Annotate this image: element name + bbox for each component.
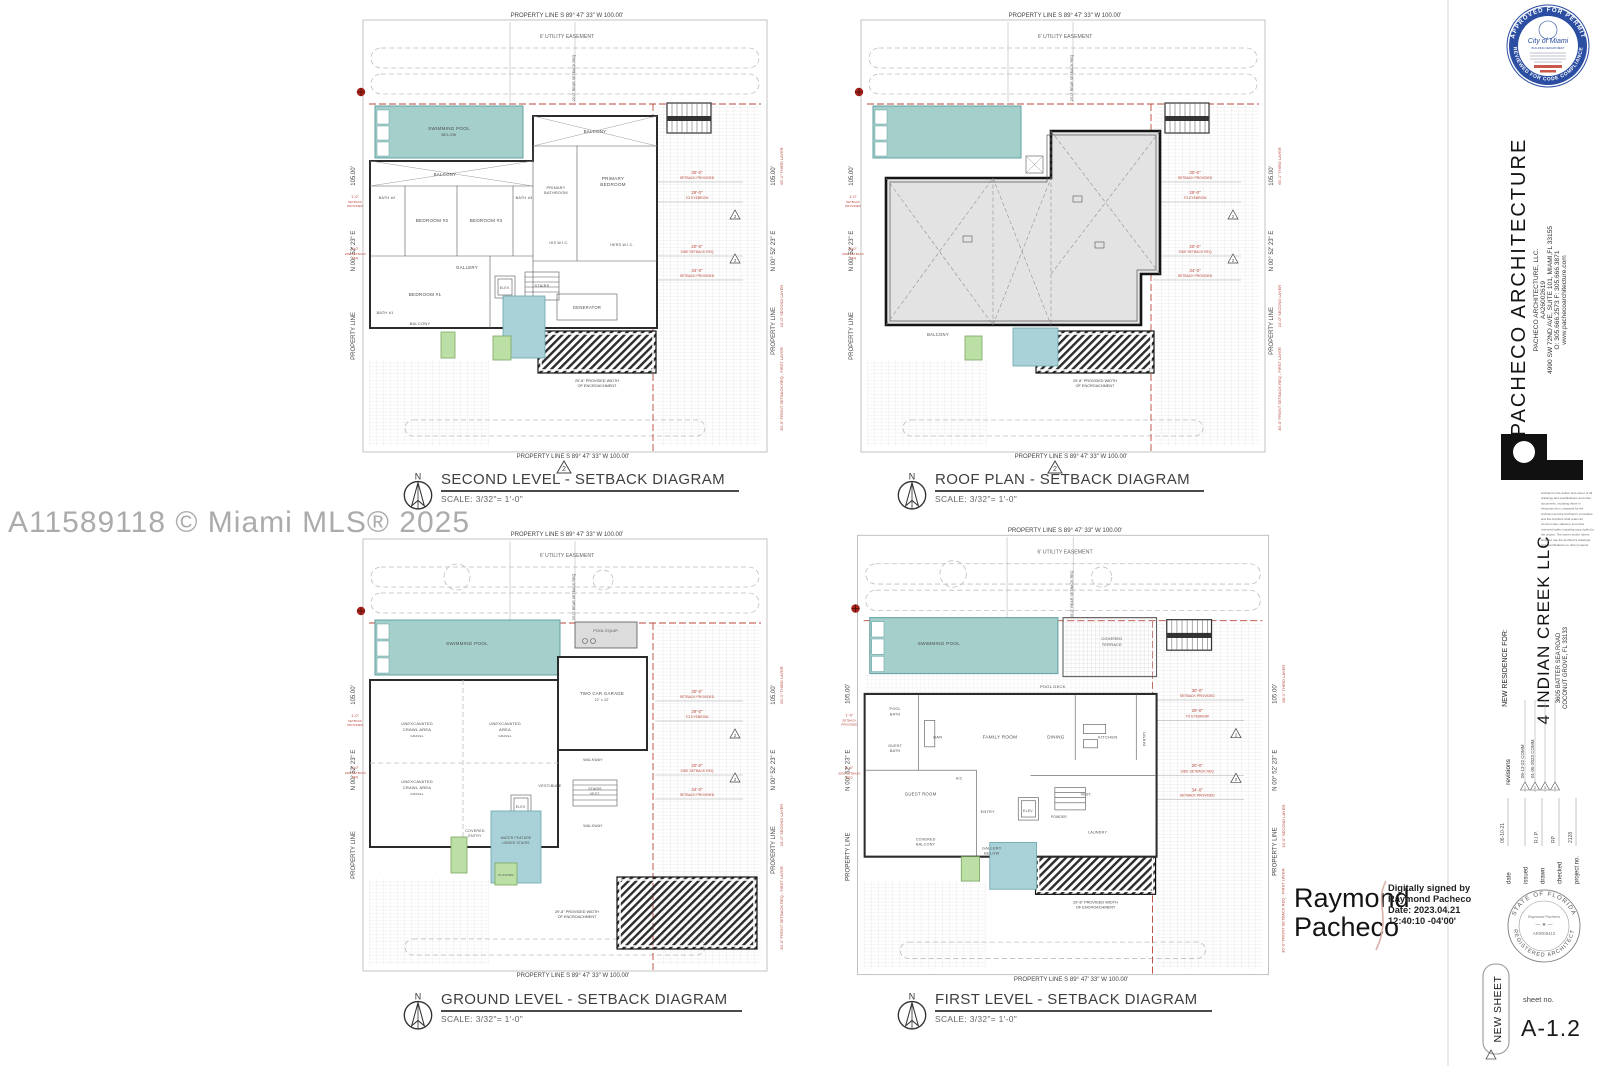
room-label: ENTRY — [468, 834, 482, 838]
frame-label: 5'-0" — [351, 247, 359, 251]
roof-plan: BALCONY — [873, 106, 1160, 366]
field-value: 2128 — [1568, 832, 1574, 843]
frame-label: PROVIDED — [841, 722, 858, 726]
pool — [870, 618, 1058, 674]
setback-dim: SIDE SETBACK REQ — [1181, 769, 1215, 773]
frame-label: 65'-1" THIRD LAYER — [779, 147, 784, 184]
frame-label: 10'-0" SECOND LAYER — [1277, 285, 1282, 327]
room-label: HIS W.I.C. — [549, 241, 568, 245]
room-label: GRAVEL — [410, 792, 424, 796]
svg-text:2: 2 — [562, 466, 566, 473]
encroachment-label: OF ENCROACHMENT — [578, 384, 617, 388]
revisions-label: revisions — [1505, 758, 1512, 784]
setback-dim: TO EYEBROW — [686, 715, 710, 719]
property-line-top: PROPERTY LINE S 89° 47' 33" W 100.00' — [1009, 13, 1122, 19]
disclaimer-line: electronic form, prepared by the — [1541, 507, 1584, 511]
roof-outline — [886, 131, 1160, 325]
room-label: BATH #2 — [379, 196, 396, 200]
revision-number: 2 — [1534, 786, 1536, 790]
property-line-top: PROPERTY LINE S 89° 47' 33" W 100.00' — [511, 13, 624, 19]
room-label: GRAVEL — [498, 734, 512, 738]
frame-label: 65'-1" THIRD LAYER — [1277, 147, 1282, 184]
frame-label: 20'-0" REAR SETBACK REQ — [572, 54, 576, 101]
first-level-title-block: N FIRST LEVEL - SETBACK DIAGRAM SCALE: 3… — [896, 991, 1212, 1031]
setback-dim: 34'-0" — [691, 268, 703, 273]
room-label: BATH #1 — [377, 311, 394, 315]
property-line-left: PROPERTY LINE — [844, 832, 851, 881]
frame-label: N 00° 52' 23" E — [351, 231, 357, 272]
setback-dim: SETBACK PROVIDED — [680, 176, 715, 180]
setback-dim: SETBACK PROVIDED — [680, 695, 715, 699]
frame-label: N 00° 52' 23" E — [1269, 231, 1275, 272]
frame-label: 10'-0" SECOND LAYER — [779, 285, 784, 327]
revision-number: 4 — [1554, 786, 1556, 790]
second-level-diagram: PROPERTY LINE S 89° 47' 33" W 100.00'6' … — [345, 6, 785, 470]
firm-line: www.pachecoarchitecture.com — [1561, 255, 1568, 346]
room-label: TWO CAR GARAGE — [580, 691, 624, 696]
property-line-right: PROPERTY LINE — [1272, 827, 1279, 876]
room-label: BATH — [890, 712, 901, 716]
frame-label: 5'-0" — [351, 766, 359, 770]
north-arrow-icon: N — [402, 471, 434, 511]
field-label: checked — [1558, 862, 1564, 884]
frame-label: 5'-0" — [849, 247, 857, 251]
room-label: POWDER — [1051, 815, 1068, 819]
encroachment-hatch — [538, 331, 656, 373]
room-label: COVERED — [465, 829, 485, 833]
room-label: GRAVEL — [410, 734, 424, 738]
room-label: WALKWAY — [583, 758, 603, 762]
room-label: SWIMMING POOL — [428, 126, 470, 131]
encroachment-label: OF ENCROACHMENT — [1076, 906, 1116, 910]
tree — [444, 564, 470, 590]
room-label: GALLERY — [982, 847, 1002, 851]
room-label: BELOW — [984, 852, 999, 856]
room-label: GENERATOR — [573, 305, 601, 310]
frame-label: 105.00' — [771, 685, 777, 705]
setback-dim: 34'-0" — [1192, 788, 1204, 793]
planter — [961, 857, 979, 881]
room-label: VEST. — [590, 792, 601, 796]
setback-dim: SETBACK PROVIDED — [680, 793, 715, 797]
disclaimer-line: reserved rights, including copy rights f… — [1541, 527, 1594, 531]
frame-label: N 00° 52' 23" E — [771, 231, 777, 272]
frame-label: PROVIDED — [347, 723, 364, 727]
frame-label: 1'-0" — [351, 714, 359, 718]
property-line-left: PROPERTY LINE — [849, 312, 855, 360]
setback-dim: 20'-0" — [1189, 244, 1201, 249]
room-label: UNEXCAVATED — [489, 721, 521, 726]
room-label: BEDROOM #2 — [416, 218, 449, 223]
frame-label: 105.00' — [1272, 684, 1279, 704]
second-level-plan: SWIMMING POOL BELOW BALCONY BALCONY BATH… — [370, 106, 657, 360]
diagram-scale: SCALE: 3/32"= 1'-0" — [935, 1014, 1212, 1024]
water-feature — [1013, 328, 1058, 366]
frame-label: 1'-0" — [351, 195, 359, 199]
encroachment-label: OF ENCROACHMENT — [1076, 384, 1115, 388]
frame-label: 30'-0" FRONT SETBACK REQ - FIRST LAYER — [779, 866, 784, 950]
disclaimer-line: Architect and the Architect's consultant — [1541, 512, 1593, 516]
setback-dim: 20'-0" — [691, 244, 703, 249]
digital-signature-note: Digitally signed by Raymond Pacheco Date… — [1388, 883, 1483, 928]
room-label: HERS W.I.C. — [610, 243, 634, 247]
encroachment-label: 29'-8" PROVIDED WIDTH — [575, 379, 619, 383]
setback-dim: 34'-0" — [1189, 268, 1201, 273]
frame-label: 105.00' — [844, 684, 851, 704]
setback-dim: TO EYEBROW — [1184, 196, 1208, 200]
room-label: AREA — [499, 727, 511, 732]
new-sheet-label: NEW SHEET — [1492, 975, 1504, 1042]
north-arrow-icon: N — [402, 991, 434, 1031]
frame-label: 10'-0" SECOND LAYER — [1281, 805, 1286, 848]
frame-label: N 00° 52' 23" E — [1272, 750, 1279, 791]
disclaimer-line: and the Architect shall retain all — [1541, 517, 1583, 521]
utility-easement: 6' UTILITY EASEMENT — [540, 553, 595, 559]
frame-label: N 00° 52' 23" E — [771, 750, 777, 791]
utility-easement: 6' UTILITY EASEMENT — [1038, 34, 1093, 40]
revision-triangle: 2 — [555, 459, 573, 475]
room-label: COVERED — [1101, 637, 1122, 641]
room-label: BALCONY — [584, 129, 607, 134]
room-label: POOL — [890, 707, 901, 711]
room-label: UNEXCAVATED — [401, 779, 433, 784]
room-label: WATER FEATURE — [501, 836, 532, 840]
frame-label: 105.00' — [771, 166, 777, 186]
property-line-top: PROPERTY LINE S 89° 47' 33" W 100.00' — [511, 532, 624, 538]
room-label: A/C — [956, 776, 963, 780]
room-label: BATH #3 — [516, 196, 533, 200]
pool — [375, 620, 560, 675]
field-value: RP — [1551, 835, 1557, 843]
pacheco-logo — [1501, 434, 1583, 480]
room-label: SWIMMING POOL — [918, 641, 961, 646]
pool-below — [375, 106, 523, 158]
seal-star: — ★ — — [1535, 922, 1552, 928]
client-name: 4 INDIAN CREEK LLC — [1534, 536, 1553, 725]
pool-equipment — [575, 622, 637, 648]
for-label: NEW RESIDENCE FOR: — [1502, 629, 1509, 707]
second-level-title-block: N SECOND LEVEL - SETBACK DIAGRAM SCALE: … — [402, 471, 739, 511]
encroachment-hatch — [1036, 852, 1156, 895]
room-label: PLANTER — [498, 873, 514, 877]
frame-label: 30'-0" FRONT SETBACK REQ - FIRST LAYER — [1277, 347, 1282, 431]
field-label: drawn — [1541, 868, 1547, 884]
room-label: GALLERY — [456, 265, 478, 270]
room-label: SWIMMING POOL — [446, 641, 488, 646]
frame-label: 105.00' — [1269, 166, 1275, 186]
firm-line: O: 305.666.2573 F: 305.666.3871 — [1554, 250, 1561, 349]
room-label: LAUNDRY — [1088, 830, 1107, 834]
first-level-diagram: PROPERTY LINE S 89° 47' 33" W 100.00'6' … — [838, 521, 1288, 993]
frame-label: 105.00' — [849, 166, 855, 186]
property-line-bottom: PROPERTY LINE S 89° 47' 33" W 100.00' — [517, 973, 630, 979]
room-label: CRAWL AREA — [403, 727, 432, 732]
room-label: ELEV. — [500, 286, 511, 290]
north-arrow-icon: N — [896, 991, 928, 1031]
disclaimer-line: documents, including those in — [1541, 501, 1581, 505]
planter — [493, 336, 511, 360]
titleblock-fields: date06-10-21issueddrawnR.I.P.checkedRPpr… — [1500, 798, 1581, 884]
planter — [451, 837, 467, 873]
setback-dim: SIDE SETBACK REQ — [681, 769, 714, 773]
setback-dim: 30'-0" — [691, 170, 703, 175]
encroachment-label: OF ENCROACHMENT — [558, 915, 597, 919]
sheet-number: A-1.2 — [1521, 1015, 1581, 1041]
room-label: STAIRS — [535, 284, 550, 288]
frame-label: 105.00' — [351, 166, 357, 186]
project-address: COCONUT GROVE, FL 33133 — [1563, 626, 1569, 709]
room-label: GUEST ROOM — [905, 792, 937, 797]
setback-dim: 30'-0" — [1189, 170, 1201, 175]
roof-plan-title-block: N ROOF PLAN - SETBACK DIAGRAM SCALE: 3/3… — [896, 471, 1204, 511]
room-label: UNEXCAVATED — [401, 721, 433, 726]
setback-dim: 29'-0" — [1192, 708, 1204, 713]
room-label: WALKWAY — [583, 824, 603, 828]
property-line-left: PROPERTY LINE — [351, 312, 357, 360]
property-line-bottom: PROPERTY LINE S 89° 47' 33" W 100.00' — [1014, 976, 1128, 983]
frame-label: 20'-0" REAR SETBACK REQ — [1070, 570, 1074, 618]
north-arrow-icon: N — [896, 471, 928, 511]
frame-label: N 00° 52' 23" E — [844, 750, 851, 791]
revision-number: 1 — [1524, 786, 1526, 790]
diagram-title: ROOF PLAN - SETBACK DIAGRAM — [935, 471, 1204, 492]
diagram-scale: SCALE: 3/32"= 1'-0" — [441, 494, 739, 504]
firm-line: 4990 SW 72ND AVE, SUITE 101, MIAMI,FL 33… — [1547, 226, 1554, 374]
room-label: POOL EQUIP. — [593, 629, 618, 633]
room-label: VEST. — [1081, 793, 1092, 797]
room-label: BALCONY — [916, 843, 936, 847]
room-label: CRAWL AREA — [403, 785, 432, 790]
room-label: ELEV. — [1023, 809, 1034, 813]
setback-dim: SIDE SETBACK REQ — [681, 250, 714, 254]
revision-triangle: 2 — [1046, 459, 1064, 475]
setback-dim: SETBACK PROVIDED — [680, 274, 715, 278]
room-label: BATH — [890, 749, 901, 753]
drawing-sheet: A11589118 © Miami MLS® 2025 PROPERTY LIN… — [0, 0, 1600, 1066]
project-address: 3605 BATTER SEA ROAD — [1556, 632, 1562, 703]
room-label: PRIMARY — [547, 186, 566, 190]
setback-dim: SETBACK PROVIDED — [1178, 176, 1213, 180]
firm-name: PACHECO ARCHITECTURE — [1508, 138, 1530, 437]
room-label: ELEV. — [516, 805, 527, 809]
room-label: PANTRY — [1142, 731, 1146, 746]
ground-level-title-block: N GROUND LEVEL - SETBACK DIAGRAM SCALE: … — [402, 991, 742, 1031]
frame-label: REQ — [352, 256, 359, 260]
field-label: project no. — [1575, 856, 1581, 884]
room-label: UNDER STAIRS — [502, 841, 530, 845]
setback-dim: SETBACK PROVIDED — [1178, 274, 1213, 278]
frame-label: 20'-0" REAR SETBACK REQ — [572, 573, 576, 620]
diagram-title: FIRST LEVEL - SETBACK DIAGRAM — [935, 991, 1212, 1012]
frame-label: 5'-0" — [846, 766, 854, 770]
seal-city-name: City of Miami — [1528, 38, 1569, 45]
frame-label: 30'-0" FRONT SETBACK REQ - FIRST LAYER — [779, 347, 784, 431]
revision-entry: 01-05-2023 COMM — [1530, 739, 1535, 778]
room-label: DINING — [1047, 735, 1064, 740]
property-line-left: PROPERTY LINE — [351, 831, 357, 879]
ground-level-diagram: PROPERTY LINE S 89° 47' 33" W 100.00'6' … — [345, 521, 785, 993]
setback-dim: 29'-0" — [691, 709, 703, 714]
frame-label: PROVIDED — [845, 204, 862, 208]
pool — [873, 106, 1021, 158]
setback-dim: 20'-0" — [691, 763, 703, 768]
frame-label: REQ — [850, 256, 857, 260]
setback-dim: 29'-0" — [691, 190, 703, 195]
diagram-scale: SCALE: 3/32"= 1'-0" — [935, 494, 1204, 504]
room-label: PRIMARY — [602, 176, 625, 181]
room-label: BEDROOM #1 — [409, 292, 442, 297]
encroachment-hatch — [617, 877, 757, 949]
room-label: COVERED — [916, 837, 936, 841]
room-label: POOL DECK — [1040, 684, 1066, 689]
setback-dim: 30'-0" — [691, 689, 703, 694]
ground-level-plan: SWIMMING POOL POOL EQUIP. TWO CAR GARAGE… — [370, 620, 647, 885]
disclaimer-line: Architect is the author and owner of all — [1541, 491, 1592, 495]
utility-easement: 6' UTILITY EASEMENT — [1037, 550, 1093, 556]
svg-text:2: 2 — [1053, 466, 1057, 473]
frame-label: 30'-0" FRONT SETBACK REQ - FIRST LAYER — [1281, 868, 1286, 953]
frame-label: 1'-0" — [849, 195, 857, 199]
property-line-right: PROPERTY LINE — [771, 307, 777, 355]
diagram-title: SECOND LEVEL - SETBACK DIAGRAM — [441, 471, 739, 492]
disclaimer-line: drawings and specifications and other — [1541, 496, 1591, 500]
setback-dim: SETBACK PROVIDED — [1180, 794, 1215, 798]
room-label: BEDROOM #3 — [470, 218, 503, 223]
covered-terrace — [1063, 618, 1157, 677]
frame-label: 10'-0" SECOND LAYER — [779, 804, 784, 846]
utility-easement: 6' UTILITY EASEMENT — [540, 34, 595, 40]
field-label: date — [1507, 872, 1513, 884]
frame-label: N 00° 52' 23" E — [351, 750, 357, 791]
field-value: 06-10-21 — [1500, 823, 1506, 843]
field-label: issued — [1524, 867, 1530, 884]
tree — [940, 561, 966, 587]
svg-text:N: N — [909, 471, 915, 481]
svg-text:N: N — [415, 471, 421, 481]
roof-plan-diagram: PROPERTY LINE S 89° 47' 33" W 100.00'6' … — [838, 6, 1288, 470]
svg-text:N: N — [909, 991, 915, 1001]
frame-label: 65'-1" THIRD LAYER — [1281, 665, 1286, 703]
planter — [965, 336, 982, 360]
room-label: STAIRS — [588, 787, 602, 791]
florida-architect-seal: STATE OF FLORIDA REGISTERED ARCHITECT Ra… — [1508, 890, 1580, 962]
frame-label: REQ — [846, 775, 853, 779]
frame-label: 1'-0" — [846, 713, 854, 717]
diagram-title: GROUND LEVEL - SETBACK DIAGRAM — [441, 991, 742, 1012]
seal-dept: BUILDING DEPARTMENT — [1532, 46, 1565, 50]
room-label: BELOW — [442, 133, 457, 137]
room-label: BALCONY — [927, 332, 949, 337]
property-line-bottom: PROPERTY LINE S 89° 47' 33" W 100.00' — [517, 454, 630, 460]
disclaimer-line: common law, statutory and other — [1541, 522, 1584, 526]
room-label: BALCONY — [410, 321, 431, 326]
setback-dim: TO EYEBROW — [686, 196, 710, 200]
planter — [441, 332, 455, 358]
encroachment-label: 29'-8" PROVIDED WIDTH — [1073, 379, 1117, 383]
setback-dim: TO EYEBROW — [1186, 714, 1210, 718]
property-line-right: PROPERTY LINE — [1269, 307, 1275, 355]
room-label: BALCONY — [434, 172, 457, 177]
setback-dim: 34'-0" — [691, 787, 703, 792]
setback-dim: 20'-0" — [1192, 763, 1204, 768]
diagram-scale: SCALE: 3/32"= 1'-0" — [441, 1014, 742, 1024]
firm-line: AA26002619 — [1540, 281, 1547, 319]
room-label: BAR — [933, 735, 942, 740]
room-label: FAMILY ROOM — [983, 735, 1018, 740]
frame-label: 20'-0" REAR SETBACK REQ — [1070, 54, 1074, 101]
room-label: 22' x 22' — [595, 698, 610, 702]
room-label: BATHROOM — [544, 191, 568, 195]
seal-license-number: AR0006413 — [1533, 931, 1556, 936]
frame-label: REQ — [352, 775, 359, 779]
encroachment-label: 29'-8" PROVIDED WIDTH — [1073, 900, 1118, 904]
first-level-plan: SWIMMING POOL COVERED TERRACE POOL DECK … — [865, 618, 1157, 890]
revision-entry: 05-13-22 COMM — [1520, 744, 1525, 778]
setback-dim: 29'-0" — [1189, 190, 1201, 195]
revision-number: 3 — [1544, 786, 1546, 790]
room-label: TERRACE — [1102, 643, 1122, 647]
svg-text:N: N — [415, 991, 421, 1001]
frame-label: 65'-1" THIRD LAYER — [779, 666, 784, 703]
room-label: KITCHEN — [1098, 735, 1118, 740]
frame-label: N 00° 52' 23" E — [849, 231, 855, 272]
setback-dim: 30'-0" — [1192, 688, 1204, 693]
seal-architect-name: Raymond Pacheco — [1528, 915, 1560, 919]
frame-label: PROVIDED — [347, 204, 364, 208]
city-of-miami-approval-seal: APPROVED FOR PERMIT REVIEWED FOR CODE CO… — [1507, 5, 1589, 87]
property-line-top: PROPERTY LINE S 89° 47' 33" W 100.00' — [1008, 527, 1122, 534]
property-line-right: PROPERTY LINE — [771, 826, 777, 874]
property-line-bottom: PROPERTY LINE S 89° 47' 33" W 100.00' — [1015, 454, 1128, 460]
room-label: BEDROOM — [600, 182, 626, 187]
room-label: VESTIBULE — [538, 784, 561, 788]
encroachment-label: 29'-8" PROVIDED WIDTH — [555, 910, 599, 914]
setback-dim: SETBACK PROVIDED — [1180, 694, 1215, 698]
room-label: ENTRY — [981, 810, 995, 814]
setback-dim: SIDE SETBACK REQ — [1179, 250, 1212, 254]
field-value: R.I.P. — [1534, 831, 1540, 843]
firm-line: PACHECO ARCHITECTURE, LLC. — [1533, 248, 1540, 351]
frame-label: 105.00' — [351, 685, 357, 705]
room-label: GUEST — [888, 744, 902, 748]
sheet-no-label: sheet no. — [1523, 995, 1554, 1004]
